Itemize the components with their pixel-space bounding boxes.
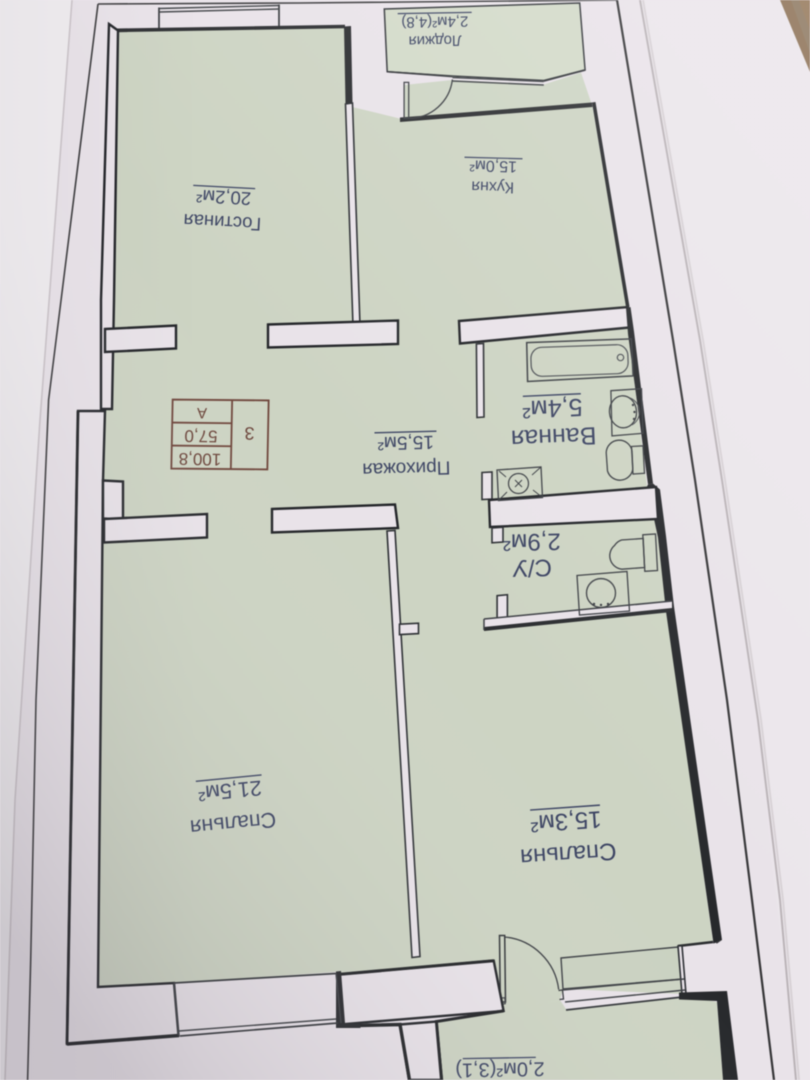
svg-text:5,4м²: 5,4м² <box>522 393 583 424</box>
svg-text:Кухня: Кухня <box>471 177 514 195</box>
svg-text:Гостиная: Гостиная <box>183 210 262 235</box>
svg-text:Прихожая: Прихожая <box>362 456 451 479</box>
svg-text:15,0м²: 15,0м² <box>469 156 518 174</box>
svg-text:2,0м²(3,1): 2,0м²(3,1) <box>455 1057 545 1080</box>
svg-text:100,8: 100,8 <box>179 449 222 469</box>
svg-text:2,4м²(4,8): 2,4м²(4,8) <box>401 12 468 30</box>
svg-text:57,0: 57,0 <box>184 426 217 446</box>
svg-text:С/У: С/У <box>512 554 552 582</box>
svg-text:20,2м²: 20,2м² <box>196 186 252 210</box>
svg-text:2,9м²: 2,9м² <box>503 527 561 555</box>
svg-text:Ванная: Ванная <box>510 421 597 453</box>
svg-text:3: 3 <box>244 423 254 443</box>
svg-text:15,5м²: 15,5м² <box>377 431 434 453</box>
svg-text:А: А <box>197 404 207 421</box>
svg-text:Лоджия: Лоджия <box>408 32 461 50</box>
